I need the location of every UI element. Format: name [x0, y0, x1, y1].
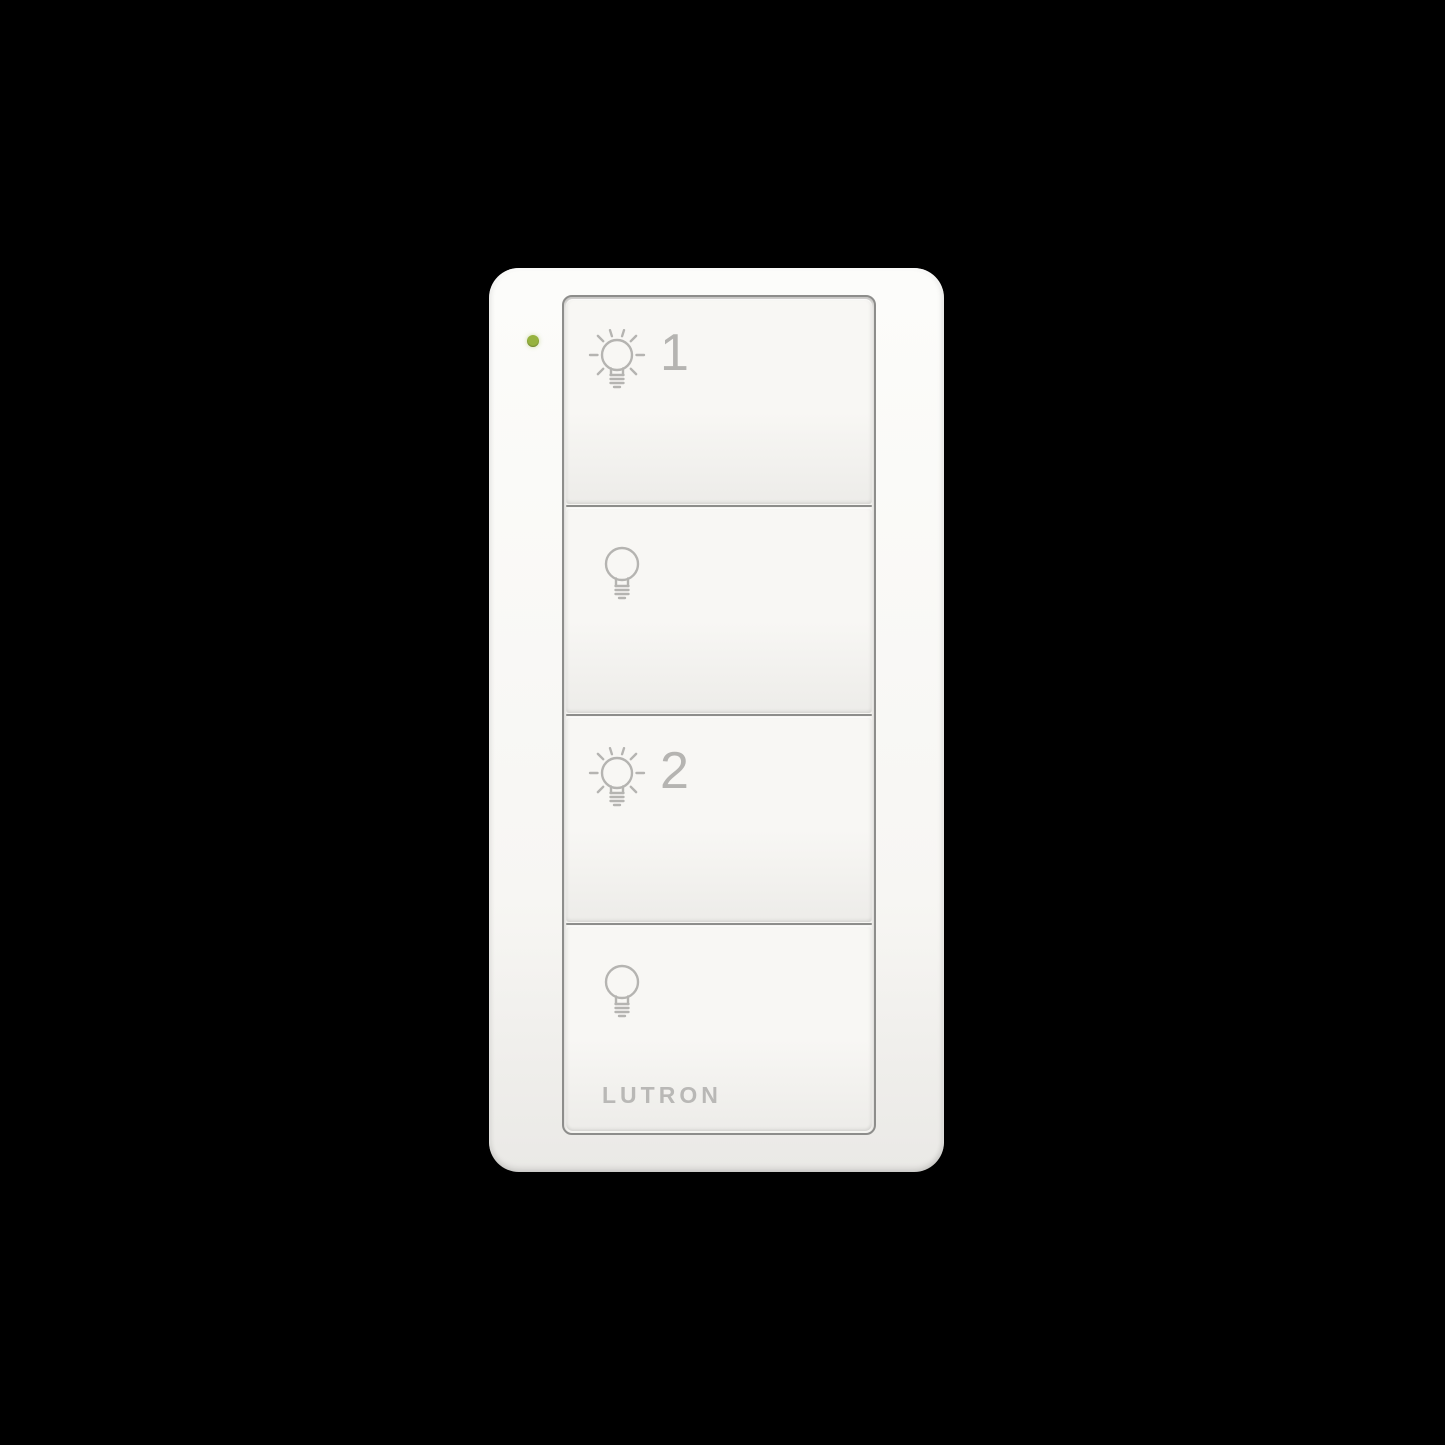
button-label: 2 — [660, 745, 690, 797]
button-light-1-off[interactable] — [566, 508, 872, 713]
button-divider — [566, 714, 872, 716]
bulb-on-icon — [582, 747, 652, 816]
button-divider — [566, 923, 872, 925]
bulb-off-icon — [602, 964, 642, 1027]
button-label: 1 — [660, 327, 690, 379]
status-led — [527, 335, 539, 347]
bulb-on-icon — [582, 329, 652, 398]
button-light-2-off[interactable]: LUTRON — [566, 926, 872, 1131]
brand-logo: LUTRON — [602, 1082, 722, 1109]
product-photo-background: 1 — [0, 0, 1445, 1445]
button-light-2-on[interactable]: 2 — [566, 717, 872, 922]
pico-remote-body: 1 — [489, 268, 944, 1172]
bulb-off-icon — [602, 546, 642, 609]
button-column: 1 — [562, 295, 876, 1135]
button-divider — [566, 505, 872, 507]
button-light-1-on[interactable]: 1 — [566, 299, 872, 504]
